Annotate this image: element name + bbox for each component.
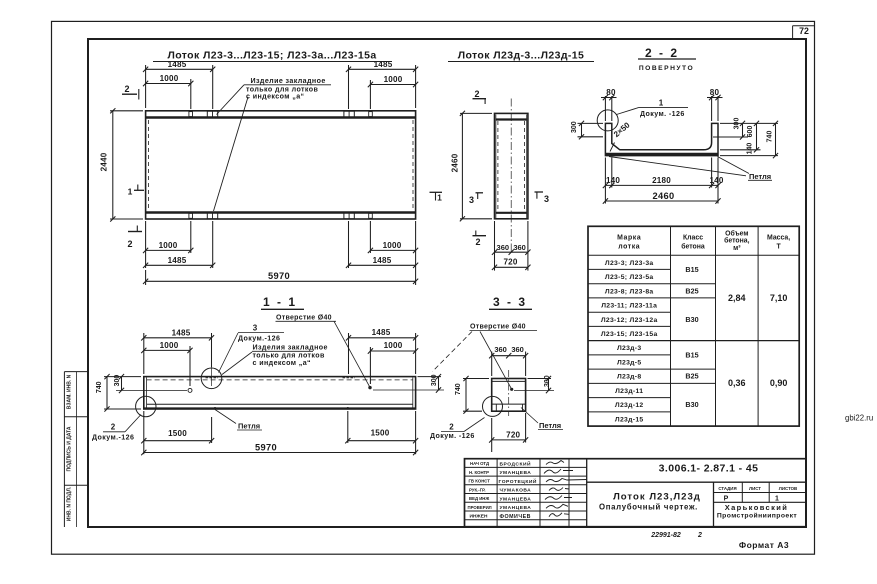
svg-text:ПРОВЕРИЛ: ПРОВЕРИЛ (468, 505, 492, 510)
svg-text:B25: B25 (685, 372, 698, 381)
svg-text:УМАНЦЕВА: УМАНЦЕВА (500, 470, 532, 476)
svg-text:1: 1 (128, 187, 133, 197)
svg-text:1485: 1485 (372, 328, 391, 337)
svg-text:Л23д-12: Л23д-12 (615, 402, 644, 409)
svg-text:НАЧ ОТД: НАЧ ОТД (470, 461, 489, 466)
svg-text:740: 740 (96, 381, 103, 393)
svg-text:140: 140 (746, 143, 753, 155)
svg-text:Марка: Марка (617, 235, 641, 242)
svg-text:Докум. -126: Докум. -126 (640, 110, 685, 118)
svg-text:360: 360 (513, 243, 526, 252)
svg-text:Л23д-5: Л23д-5 (617, 360, 642, 367)
svg-text:1000: 1000 (160, 341, 179, 350)
svg-text:360: 360 (497, 243, 510, 252)
svg-text:720: 720 (503, 258, 517, 267)
svg-text:Отверстие Ø40: Отверстие Ø40 (470, 324, 526, 331)
svg-text:22991-82: 22991-82 (650, 532, 681, 539)
svg-text:Л23д-3: Л23д-3 (617, 345, 642, 352)
svg-text:м³: м³ (733, 245, 741, 252)
svg-text:Л23д-11: Л23д-11 (615, 388, 643, 395)
svg-text:с индексом „а“: с индексом „а“ (253, 359, 312, 367)
svg-text:1485: 1485 (168, 60, 187, 69)
svg-text:2180: 2180 (652, 176, 671, 185)
svg-text:СТАДИЯ: СТАДИЯ (718, 486, 736, 491)
svg-text:1: 1 (775, 495, 779, 502)
svg-text:Петля: Петля (749, 172, 771, 181)
svg-text:лотка: лотка (618, 244, 640, 251)
svg-text:1000: 1000 (383, 241, 402, 250)
svg-text:ИНЖЕН: ИНЖЕН (470, 514, 488, 520)
svg-text:1 - 1: 1 - 1 (263, 295, 297, 309)
svg-text:Докум. -126: Докум. -126 (430, 432, 475, 440)
svg-text:Класс: Класс (683, 235, 703, 242)
svg-text:B30: B30 (685, 400, 698, 409)
svg-text:Масса,: Масса, (767, 235, 790, 242)
svg-text:360: 360 (494, 345, 507, 354)
svg-text:2: 2 (124, 84, 129, 94)
svg-text:бетона,: бетона, (724, 237, 749, 245)
svg-text:2: 2 (449, 423, 454, 432)
svg-text:Л23д-8: Л23д-8 (617, 374, 642, 381)
svg-text:5970: 5970 (268, 271, 290, 281)
svg-text:ЛИСТОВ: ЛИСТОВ (779, 486, 797, 491)
svg-text:7,10: 7,10 (770, 293, 788, 303)
svg-text:3: 3 (469, 195, 474, 205)
svg-text:Отверстие Ø40: Отверстие Ø40 (276, 315, 332, 322)
svg-text:80: 80 (710, 88, 720, 97)
svg-text:1: 1 (659, 99, 664, 108)
svg-text:1500: 1500 (168, 429, 187, 438)
svg-text:300: 300 (734, 118, 741, 130)
svg-text:300: 300 (544, 375, 551, 387)
svg-text:3.006.1- 2.87.1 - 45: 3.006.1- 2.87.1 - 45 (659, 463, 759, 475)
svg-text:1000: 1000 (384, 341, 403, 350)
svg-text:1485: 1485 (172, 328, 191, 337)
svg-text:Изделие закладное: Изделие закладное (251, 77, 326, 85)
svg-text:B25: B25 (685, 286, 698, 295)
svg-text:Л23-11; Л23-11а: Л23-11; Л23-11а (601, 303, 657, 310)
svg-text:2 - 2: 2 - 2 (645, 46, 679, 60)
svg-text:Докум.-126: Докум.-126 (92, 434, 134, 442)
svg-text:1485: 1485 (168, 256, 187, 265)
svg-text:УМАНЦЕВА: УМАНЦЕВА (500, 496, 532, 502)
svg-text:2: 2 (474, 89, 479, 99)
svg-text:1000: 1000 (384, 75, 403, 84)
svg-text:2460: 2460 (451, 153, 460, 172)
svg-text:ИНВ. N ПОДЛ.: ИНВ. N ПОДЛ. (67, 486, 73, 521)
svg-text:ЧУМАКОВА: ЧУМАКОВА (500, 488, 532, 494)
svg-text:1000: 1000 (159, 241, 178, 250)
svg-text:740: 740 (767, 131, 774, 143)
svg-text:2,84: 2,84 (728, 293, 746, 303)
svg-text:ПОВЕРНУТО: ПОВЕРНУТО (639, 65, 694, 72)
svg-text:2440: 2440 (100, 152, 109, 171)
svg-text:Петля: Петля (539, 421, 561, 430)
svg-text:Лоток Л23-3...Л23-15; Л23-3а..: Лоток Л23-3...Л23-15; Л23-3а...Л23-15а (167, 50, 376, 62)
svg-text:Н. КОНТР: Н. КОНТР (469, 470, 489, 475)
svg-text:Л23д-15: Л23д-15 (615, 416, 644, 423)
svg-text:360: 360 (511, 345, 524, 354)
svg-text:2: 2 (475, 237, 480, 247)
svg-text:Лоток Л23д-3...Л23д-15: Лоток Л23д-3...Л23д-15 (458, 50, 585, 62)
svg-text:Петля: Петля (238, 422, 260, 431)
svg-text:Докум.-126: Докум.-126 (238, 335, 280, 343)
svg-text:3: 3 (253, 324, 258, 333)
svg-text:gbi22.ru: gbi22.ru (845, 414, 873, 423)
svg-text:Формат А3: Формат А3 (739, 540, 789, 550)
svg-text:300: 300 (114, 375, 121, 387)
svg-text:5970: 5970 (255, 442, 277, 452)
svg-text:1485: 1485 (374, 60, 393, 69)
svg-text:2460: 2460 (653, 191, 675, 201)
svg-text:2: 2 (111, 423, 116, 432)
svg-text:140: 140 (709, 176, 723, 185)
svg-text:600: 600 (747, 126, 754, 138)
svg-text:бетона: бетона (681, 243, 705, 251)
svg-text:140: 140 (606, 176, 620, 185)
svg-text:1000: 1000 (160, 74, 179, 83)
svg-text:B15: B15 (685, 265, 698, 274)
svg-text:с индексом „а“: с индексом „а“ (246, 93, 305, 101)
svg-text:РУК.-ГР.: РУК.-ГР. (469, 487, 486, 492)
svg-text:3 - 3: 3 - 3 (493, 295, 527, 309)
svg-text:Харьковский: Харьковский (725, 503, 789, 512)
svg-text:B30: B30 (685, 315, 698, 324)
svg-text:Л23-12; Л23-12а: Л23-12; Л23-12а (601, 317, 658, 324)
svg-text:2: 2 (697, 532, 702, 539)
svg-text:ВЕД ИНЖ: ВЕД ИНЖ (469, 496, 489, 501)
svg-text:3: 3 (544, 194, 549, 204)
svg-text:Объем: Объем (725, 230, 748, 238)
svg-text:Л23-8; Л23-8а: Л23-8; Л23-8а (605, 288, 654, 295)
svg-text:ВЗАМ. ИНВ. N: ВЗАМ. ИНВ. N (67, 374, 73, 409)
svg-text:B15: B15 (685, 350, 698, 359)
svg-text:Л23-15; Л23-15а: Л23-15; Л23-15а (601, 331, 658, 338)
svg-text:ГВ КОНСТ: ГВ КОНСТ (469, 479, 491, 484)
svg-text:0,90: 0,90 (770, 378, 788, 388)
svg-text:740: 740 (455, 383, 462, 395)
svg-text:2: 2 (127, 239, 132, 249)
svg-text:Л23-5; Л23-5а: Л23-5; Л23-5а (605, 274, 654, 281)
svg-text:ПОДПИСЬ И ДАТА: ПОДПИСЬ И ДАТА (67, 426, 73, 471)
svg-text:Опалубочный чертеж.: Опалубочный чертеж. (599, 502, 698, 511)
svg-text:72: 72 (799, 26, 809, 36)
svg-text:Р: Р (724, 495, 729, 502)
svg-text:1: 1 (437, 193, 442, 203)
svg-text:Лоток Л23,Л23д: Лоток Л23,Л23д (613, 492, 701, 503)
svg-text:0,36: 0,36 (728, 378, 746, 388)
svg-text:80: 80 (606, 88, 616, 97)
svg-text:Л23-3; Л23-3а: Л23-3; Л23-3а (605, 260, 654, 267)
svg-text:Промстройниипроект: Промстройниипроект (717, 512, 797, 520)
svg-text:300: 300 (571, 121, 578, 133)
svg-text:1500: 1500 (371, 429, 390, 438)
svg-text:Изделия закладное: Изделия закладное (253, 344, 328, 352)
svg-text:ЛИСТ: ЛИСТ (749, 486, 761, 491)
svg-text:720: 720 (506, 430, 520, 439)
svg-text:1485: 1485 (373, 256, 392, 265)
svg-text:ФОМИЧЕВ: ФОМИЧЕВ (500, 514, 531, 520)
svg-text:УМАНЦЕВА: УМАНЦЕВА (500, 505, 532, 511)
svg-text:300: 300 (431, 374, 438, 386)
